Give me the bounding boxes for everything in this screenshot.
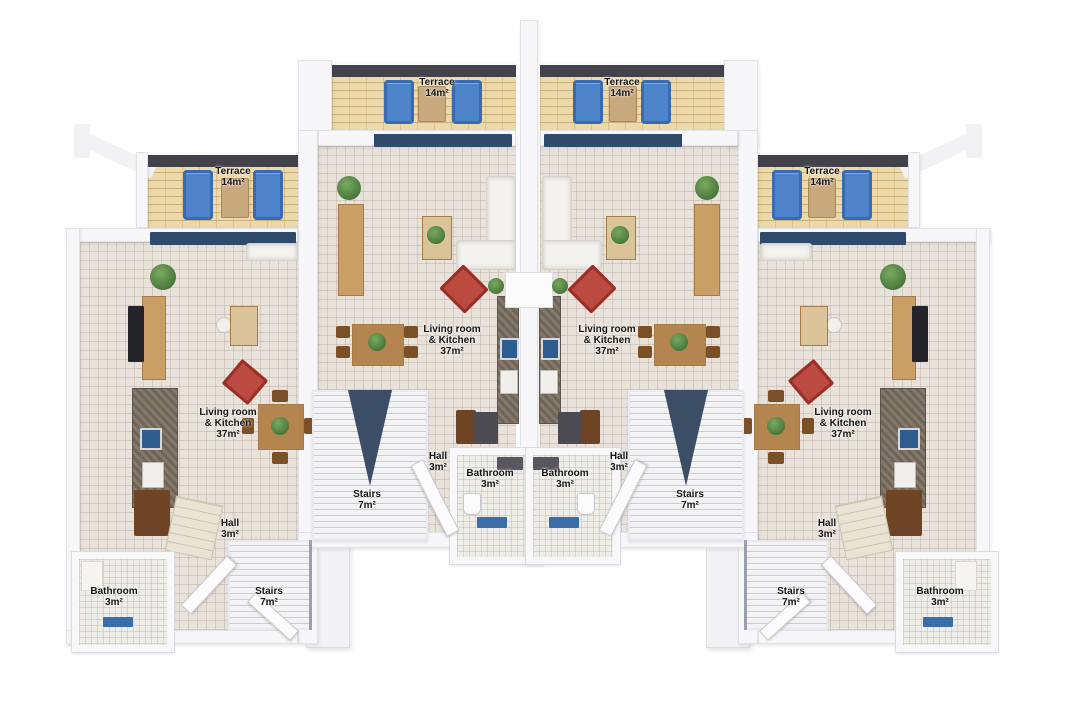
bathroom-label: Bathroom 3m² — [466, 468, 513, 490]
stove — [142, 462, 164, 488]
tv-screen — [128, 306, 144, 362]
shower-mat — [103, 617, 133, 627]
dining-chair — [768, 452, 784, 464]
living-room-label: Living room & Kitchen 37m² — [814, 407, 871, 441]
desk — [230, 306, 258, 346]
label-line: & Kitchen — [199, 418, 256, 429]
kitchen-sink — [541, 338, 560, 360]
dining-chair — [706, 326, 720, 338]
toilet — [577, 493, 595, 515]
terrace-window-inner-right — [544, 134, 682, 147]
dining-chair — [336, 346, 350, 358]
potted-plant — [552, 278, 568, 294]
terrace-label: Terrace 14m² — [419, 77, 454, 99]
sun-lounger — [641, 80, 671, 124]
kitchen-cabinet — [886, 490, 922, 536]
label-line: Terrace — [215, 166, 250, 177]
label-line: Bathroom — [541, 468, 588, 479]
label-line: Hall — [610, 451, 628, 462]
potted-plant — [880, 264, 906, 290]
sun-lounger — [253, 170, 283, 220]
kitchen-sink — [898, 428, 920, 450]
kitchen-cabinet — [134, 490, 170, 536]
label-line: 3m² — [541, 479, 588, 490]
label-line: Bathroom — [90, 586, 137, 597]
label-line: Living room — [814, 407, 871, 418]
label-line: Terrace — [604, 77, 639, 88]
shower-mat — [923, 617, 953, 627]
label-line: 37m² — [578, 347, 635, 358]
terrace-parapet-outer-left — [148, 152, 298, 167]
dining-chair — [272, 452, 288, 464]
sun-lounger — [842, 170, 872, 220]
stove — [540, 370, 558, 394]
table-plant — [427, 226, 445, 244]
terrace-sidewall-outer-right — [908, 152, 920, 228]
living-room-label: Living room & Kitchen 37m² — [423, 324, 480, 358]
desk-chair — [826, 317, 842, 333]
sun-lounger — [772, 170, 802, 220]
label-line: Stairs — [676, 489, 704, 500]
label-line: 37m² — [199, 430, 256, 441]
terrace-parapet-outer-right — [758, 152, 908, 167]
terrace-sidewall-outer-left — [136, 152, 148, 228]
stove — [500, 370, 518, 394]
label-line: 37m² — [814, 430, 871, 441]
sun-lounger — [573, 80, 603, 124]
dining-chair — [404, 346, 418, 358]
terrace-label: Terrace 14m² — [604, 77, 639, 99]
hall-label: Hall 3m² — [818, 518, 836, 540]
label-line: Living room — [423, 324, 480, 335]
label-line: & Kitchen — [814, 418, 871, 429]
kitchen-sink — [140, 428, 162, 450]
bathroom-label: Bathroom 3m² — [90, 586, 137, 608]
stairs-label: Stairs 7m² — [777, 586, 805, 608]
label-line: Bathroom — [916, 586, 963, 597]
label-line: 7m² — [255, 597, 283, 608]
label-line: 14m² — [419, 88, 454, 99]
dining-chair — [404, 326, 418, 338]
table-plant — [767, 417, 785, 435]
living-room-label: Living room & Kitchen 37m² — [199, 407, 256, 441]
shower-mat — [477, 517, 507, 528]
kitchen-cabinet — [580, 410, 600, 444]
potted-plant — [337, 176, 361, 200]
kitchen-counter — [539, 296, 561, 424]
hall-label: Hall 3m² — [429, 451, 447, 473]
terrace-window-inner-left — [374, 134, 512, 147]
dining-chair — [706, 346, 720, 358]
roof-eave-right-cap — [966, 124, 982, 158]
roof-eave-left-cap — [74, 124, 90, 158]
label-line: 14m² — [804, 177, 839, 188]
label-line: 7m² — [676, 500, 704, 511]
shower-mat — [549, 517, 579, 528]
terrace-parapet-inner-left — [332, 62, 516, 77]
sofa — [246, 243, 298, 261]
sofa — [760, 243, 812, 261]
label-line: 3m² — [818, 529, 836, 540]
bathroom-label: Bathroom 3m² — [541, 468, 588, 490]
kitchen-appliance — [558, 412, 582, 444]
tv-screen — [912, 306, 928, 362]
dining-chair — [638, 326, 652, 338]
stairs-label: Stairs 7m² — [676, 489, 704, 511]
kitchen-counter — [497, 296, 519, 424]
label-line: & Kitchen — [423, 335, 480, 346]
label-line: 7m² — [777, 597, 805, 608]
label-line: 37m² — [423, 347, 480, 358]
label-line: 7m² — [353, 500, 381, 511]
floor-plan-scene: Terrace 14m² Living room & Kitchen 37m² … — [0, 0, 1075, 720]
label-line: 3m² — [429, 462, 447, 473]
terrace-parapet-inner-right — [540, 62, 724, 77]
stairs-label: Stairs 7m² — [255, 586, 283, 608]
terrace-label: Terrace 14m² — [804, 166, 839, 188]
wall-shelf — [694, 204, 720, 296]
wall-shelf — [338, 204, 364, 296]
dining-chair — [638, 346, 652, 358]
label-line: Stairs — [777, 586, 805, 597]
party-wall-center — [520, 20, 538, 452]
label-line: Hall — [429, 451, 447, 462]
dining-chair — [802, 418, 814, 434]
label-line: Hall — [221, 518, 239, 529]
label-line: Terrace — [419, 77, 454, 88]
potted-plant — [488, 278, 504, 294]
dining-chair — [336, 326, 350, 338]
counter-head-planter — [505, 272, 553, 308]
stairs-label: Stairs 7m² — [353, 489, 381, 511]
table-plant — [368, 333, 386, 351]
label-line: Living room — [199, 407, 256, 418]
potted-plant — [150, 264, 176, 290]
bathroom-inner-right — [526, 448, 620, 564]
dining-chair — [272, 390, 288, 402]
living-room-label: Living room & Kitchen 37m² — [578, 324, 635, 358]
desk — [800, 306, 828, 346]
label-line: Hall — [818, 518, 836, 529]
kitchen-cabinet — [456, 410, 476, 444]
terrace-label: Terrace 14m² — [215, 166, 250, 188]
potted-plant — [695, 176, 719, 200]
label-line: 3m² — [466, 479, 513, 490]
kitchen-sink — [500, 338, 519, 360]
stove — [894, 462, 916, 488]
table-plant — [670, 333, 688, 351]
kitchen-appliance — [474, 412, 498, 444]
sun-lounger — [183, 170, 213, 220]
label-line: 14m² — [215, 177, 250, 188]
label-line: Living room — [578, 324, 635, 335]
label-line: Stairs — [353, 489, 381, 500]
label-line: 3m² — [221, 529, 239, 540]
table-plant — [611, 226, 629, 244]
tv-console — [142, 296, 166, 380]
dining-chair — [768, 390, 784, 402]
sun-lounger — [384, 80, 414, 124]
label-line: 3m² — [90, 597, 137, 608]
label-line: Stairs — [255, 586, 283, 597]
label-line: Terrace — [804, 166, 839, 177]
bathroom-label: Bathroom 3m² — [916, 586, 963, 608]
hall-label: Hall 3m² — [610, 451, 628, 473]
toilet — [463, 493, 481, 515]
label-line: 14m² — [604, 88, 639, 99]
hall-label: Hall 3m² — [221, 518, 239, 540]
label-line: 3m² — [916, 597, 963, 608]
label-line: 3m² — [610, 462, 628, 473]
label-line: & Kitchen — [578, 335, 635, 346]
label-line: Bathroom — [466, 468, 513, 479]
table-plant — [271, 417, 289, 435]
sun-lounger — [452, 80, 482, 124]
